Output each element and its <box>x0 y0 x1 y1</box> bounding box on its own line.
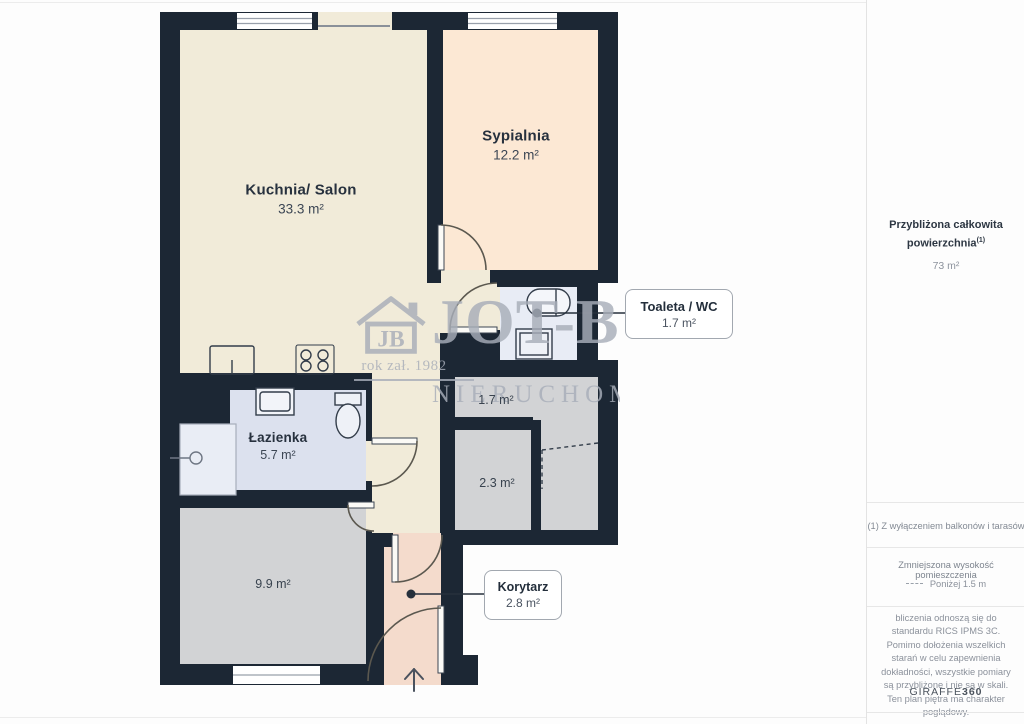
sidebar-divider <box>867 712 1024 713</box>
label-kuchnia-salon: Kuchnia/ Salon 33.3 m² <box>245 182 356 217</box>
korytarz-door-leaf <box>392 535 398 582</box>
reduced-height-title: Zmniejszona wysokość pomieszczenia <box>867 560 1024 580</box>
footnote-text: (1) Z wyłączeniem balkonów i tarasów <box>867 521 1024 531</box>
toaleta-leader-dot <box>533 309 542 318</box>
dashed-line-key-icon <box>906 583 923 584</box>
reduced-height-value: Poniżej 1.5 m <box>930 579 986 589</box>
total-area-title-line1: Przybliżona całkowita <box>889 219 1003 231</box>
callout-korytarz: Korytarz 2.8 m² <box>484 570 562 620</box>
sidebar-divider <box>867 606 1024 607</box>
bathroom-sink <box>335 393 361 438</box>
reduced-height-row: Poniżej 1.5 m <box>867 579 1024 589</box>
hall-floor <box>372 333 440 533</box>
total-area-value: 73 m² <box>867 260 1024 272</box>
disclaimer-text: bliczenia odnoszą się do standardu RICS … <box>881 612 1011 720</box>
sidebar-divider <box>867 502 1024 503</box>
floor-plan-page: Kuchnia/ Salon 33.3 m² Sypialnia 12.2 m²… <box>0 0 1024 724</box>
toilet-doorway <box>492 287 500 330</box>
bedroom-door-threshold <box>441 270 490 283</box>
korytarz-leader-dot <box>407 590 416 599</box>
label-schowek-dolny: 2.3 m² <box>479 476 514 490</box>
callout-toaleta: Toaleta / WC 1.7 m² <box>625 289 733 339</box>
total-area-block: Przybliżona całkowita powierzchnia(1) 73… <box>867 218 1024 272</box>
washing-machine <box>256 388 294 415</box>
bottom-window <box>233 666 320 684</box>
total-area-title-line2: powierzchnia <box>907 238 977 250</box>
label-sypialnia: Sypialnia 12.2 m² <box>482 128 550 163</box>
toilet-sink <box>516 329 552 359</box>
label-lazienka: Łazienka 5.7 m² <box>249 430 308 462</box>
room-schowek-gorny <box>455 377 598 420</box>
balcony-door <box>318 12 392 30</box>
shower-tray <box>180 424 236 495</box>
bathroom-door-leaf <box>372 438 417 444</box>
label-schowek-gorny: 1.7 m² <box>478 393 513 407</box>
room-reduced-height <box>541 420 598 530</box>
label-pokoj: 9.9 m² <box>255 577 290 591</box>
sidebar-divider <box>867 547 1024 548</box>
giraffe360-brand: GIRAFFE360 <box>867 686 1024 698</box>
giraffe360-brand-suffix: 360 <box>962 686 983 698</box>
total-area-footnote-marker: (1) <box>977 237 986 244</box>
bedroom-window <box>468 13 557 29</box>
bathroom-doorway <box>366 441 376 481</box>
giraffe360-brand-name: GIRAFFE <box>909 686 962 698</box>
summary-sidebar: Przybliżona całkowita powierzchnia(1) 73… <box>866 0 1024 724</box>
kitchen-window <box>237 13 312 29</box>
room-kuchnia-nook <box>427 283 497 333</box>
bedroom-door-leaf <box>438 225 444 270</box>
room99-door-leaf <box>348 502 374 508</box>
toilet-door-leaf <box>450 327 497 333</box>
entrance-door-leaf <box>438 606 444 673</box>
